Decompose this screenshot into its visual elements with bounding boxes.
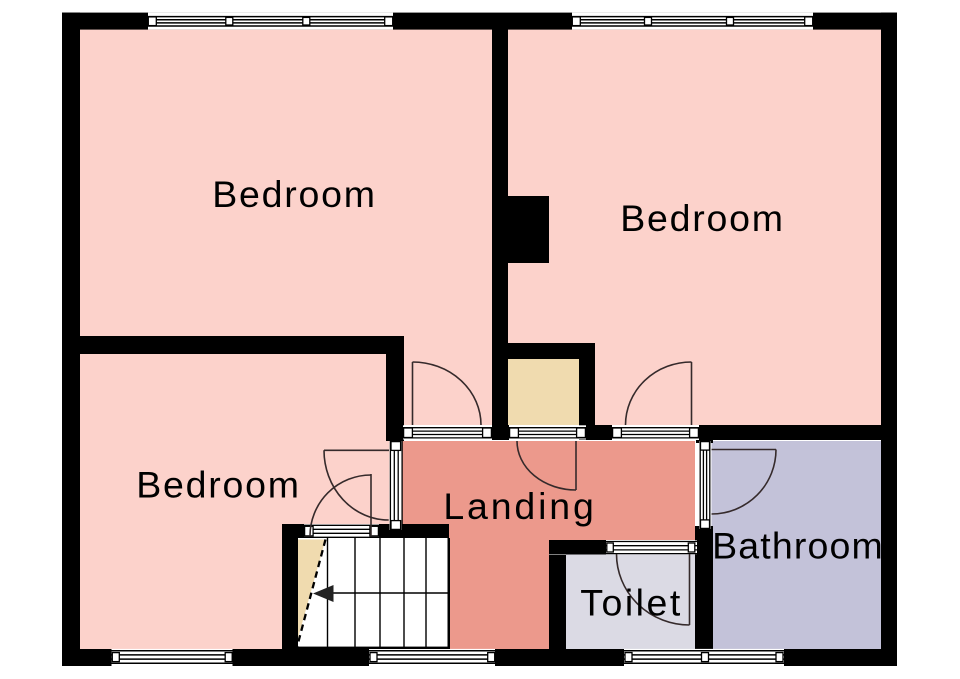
svg-text:Bathroom: Bathroom [712, 525, 884, 567]
svg-text:Bedroom: Bedroom [136, 464, 300, 506]
svg-text:Bedroom: Bedroom [212, 173, 376, 215]
svg-text:Bedroom: Bedroom [620, 197, 784, 239]
svg-text:Toilet: Toilet [580, 582, 682, 624]
svg-text:Landing: Landing [443, 485, 596, 527]
